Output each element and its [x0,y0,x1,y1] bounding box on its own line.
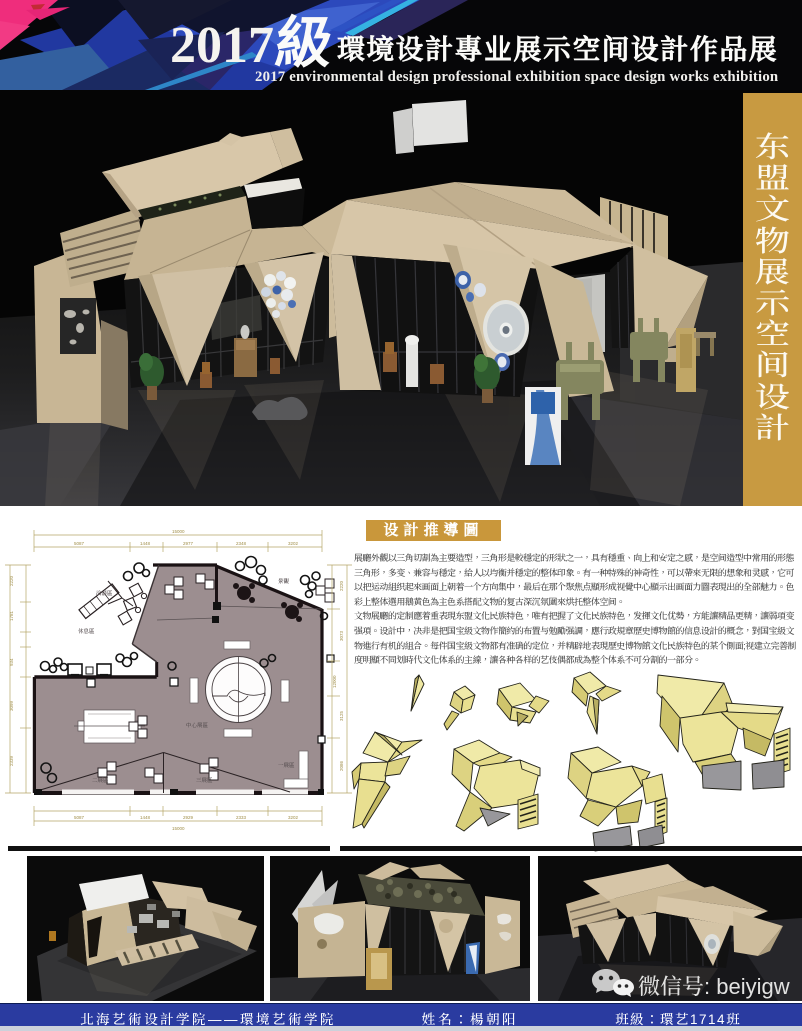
svg-text:2929: 2929 [183,815,194,820]
svg-text:中心展區: 中心展區 [186,722,209,729]
svg-text:3099: 3099 [9,700,14,711]
svg-text:3202: 3202 [288,541,299,546]
svg-text:二展區: 二展區 [92,777,109,784]
svg-text:5087: 5087 [74,815,85,820]
svg-text:1448: 1448 [140,815,151,820]
svg-text:2220: 2220 [339,580,344,591]
svg-text:2339: 2339 [9,755,14,766]
svg-text:2977: 2977 [183,541,194,546]
svg-text:1448: 1448 [140,541,151,546]
svg-text:三展區: 三展區 [196,777,213,784]
svg-text:934: 934 [9,658,14,666]
svg-text:2348: 2348 [236,541,247,546]
svg-text:1781: 1781 [9,610,14,621]
svg-text:2220: 2220 [9,575,14,586]
svg-text:15000: 15000 [172,529,185,534]
svg-text:2333: 2333 [236,815,247,820]
svg-text:3073: 3073 [339,630,344,641]
svg-text:3202: 3202 [288,815,299,820]
svg-text:15000: 15000 [172,826,185,831]
svg-text:洽談區: 洽談區 [96,590,113,597]
svg-text:休息區: 休息區 [78,628,95,635]
svg-text:5087: 5087 [74,541,85,546]
svg-text:一展區: 一展區 [278,762,295,769]
svg-text:12000: 12000 [332,675,337,688]
svg-text:景觀: 景觀 [278,578,290,585]
